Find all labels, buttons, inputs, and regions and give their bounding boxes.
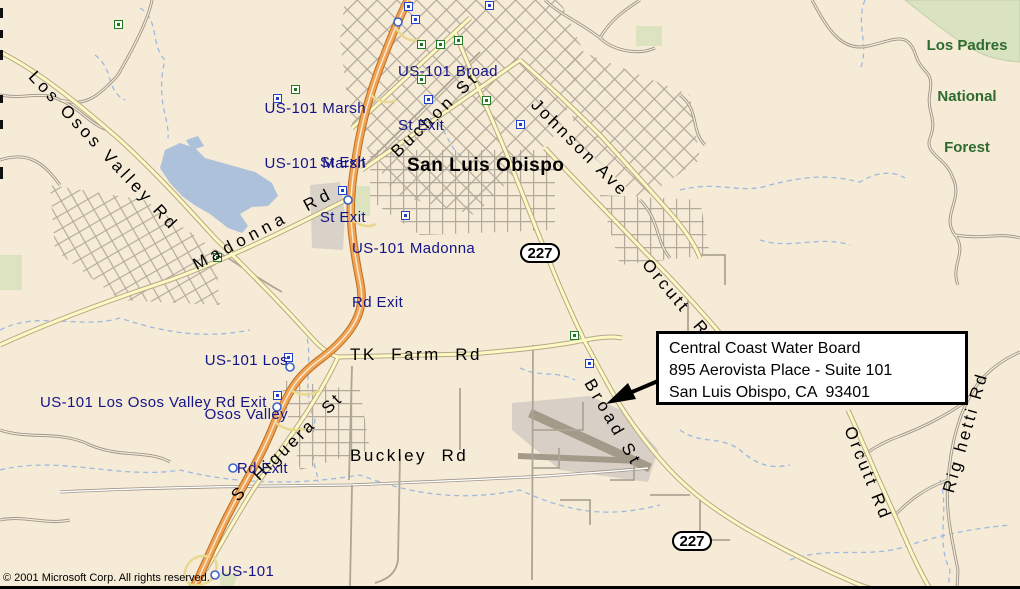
map-canvas [0,0,1020,589]
route-227-shield: 227 [672,531,712,551]
poi-icon-green[interactable] [114,20,123,29]
exit-label-line: Rd Exit [352,294,475,312]
exit-label-los-osos-valley-rd-b: US-101 Los Osos Valley Rd Exit [40,394,267,412]
route-227-shield: 227 [520,243,560,263]
callout-line-city: San Luis Obispo, CA 93401 [669,382,965,404]
map[interactable]: Los Osos Valley Rd Madonna Rd S Higuera … [0,0,1020,589]
map-edge-road-stub [0,50,3,60]
poi-icon-blue[interactable] [404,2,413,11]
address-callout: Central Coast Water Board 895 Aerovista … [656,331,968,405]
map-edge-road-stub [0,95,3,103]
exit-label-line: US-101 Los [198,352,288,370]
callout-line-street: 895 Aerovista Place - Suite 101 [669,360,965,382]
forest-label: Los Padres National Forest [916,3,1018,190]
exit-label-line: US-101 Marsh [256,100,366,118]
map-edge-road-stub [0,8,3,18]
forest-label-line3: Forest [916,139,1018,156]
forest-label-line2: National [916,88,1018,105]
exit-label-line: US-101 Marsh [256,155,366,173]
forest-label-line1: Los Padres [916,37,1018,54]
exit-label-clover-ridge-ln: US-101 Clover Ridge Ln Exit [221,527,313,589]
poi-icon-green[interactable] [570,331,579,340]
poi-icon-blue[interactable] [516,120,525,129]
map-edge-road-stub [0,167,3,179]
route-227-number: 227 [527,245,552,262]
poi-icon-blue[interactable] [411,15,420,24]
road-label-tk-farm-rd: TK Farm Rd [350,346,482,364]
exit-label-line: US-101 Broad [398,63,498,81]
callout-line-name: Central Coast Water Board [669,338,965,360]
poi-icon-blue[interactable] [485,1,494,10]
map-edge-road-stub [0,30,3,38]
copyright-notice: © 2001 Microsoft Corp. All rights reserv… [3,572,210,584]
exit-label-marsh-st-2: US-101 Marsh St Exit [256,119,366,263]
exit-label-line: US-101 Madonna [352,240,475,258]
exit-label-line: US-101 [221,563,313,581]
poi-icon-blue[interactable] [585,359,594,368]
road-label-buckley-rd: Buckley Rd [350,447,468,465]
exit-label-broad-st: US-101 Broad St Exit [398,27,498,171]
exit-label-line: St Exit [398,117,498,135]
map-edge-road-stub [0,120,3,129]
exit-label-line: St Exit [256,209,366,227]
route-227-number: 227 [679,533,704,550]
exit-label-madonna-rd: US-101 Madonna Rd Exit [352,204,475,348]
exit-label-los-osos-valley-rd-a: US-101 Los Osos Valley Rd Exit [198,316,288,514]
exit-label-line: Rd Exit [198,460,288,478]
